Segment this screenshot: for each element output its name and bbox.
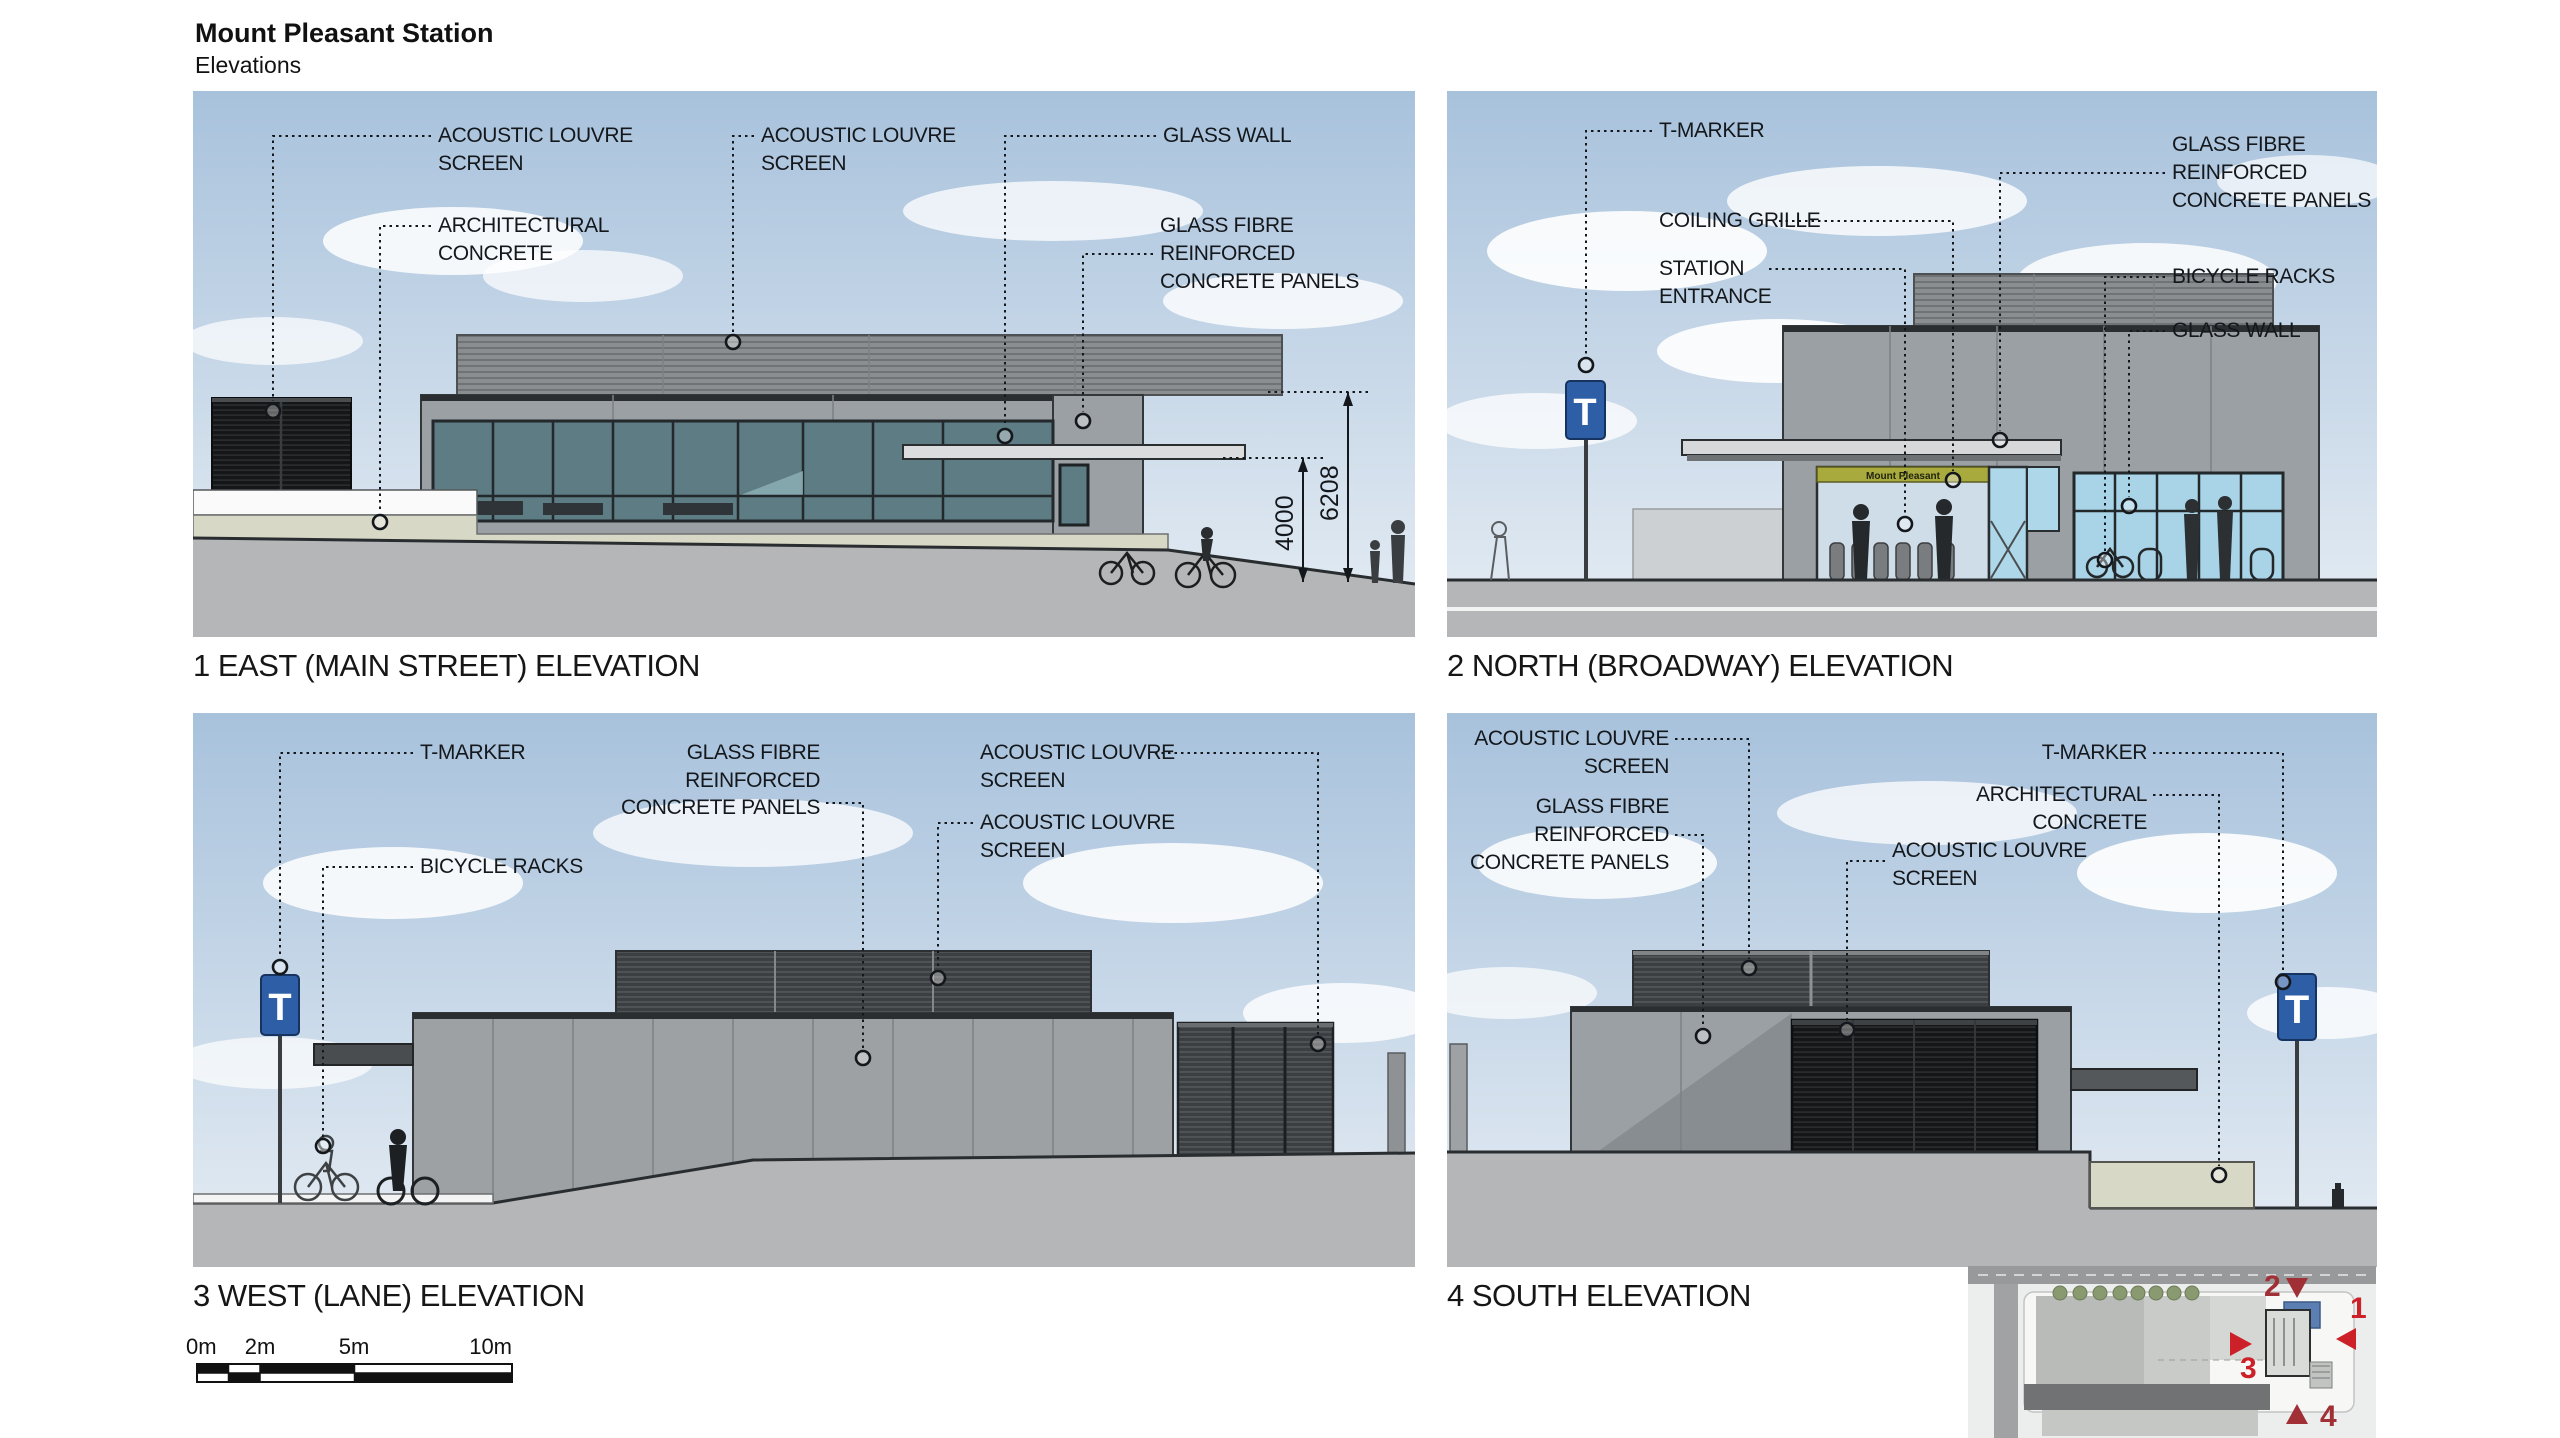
label-architectural-concrete-b: CONCRETE: [2032, 811, 2147, 834]
label-gfrc-b: REINFORCED: [2172, 161, 2307, 184]
label-acoustic-louvre-2b: SCREEN: [761, 152, 846, 175]
east-glass-wall: [433, 421, 1053, 521]
north-adjacent-building: [1633, 509, 1783, 580]
west-louvre-gate: [1178, 1023, 1333, 1156]
label-gfrc-b: REINFORCED: [1534, 823, 1669, 846]
label-acoustic-louvre-1: ACOUSTIC LOUVRE: [438, 124, 633, 147]
south-canopy-bar: [2071, 1069, 2197, 1090]
label-acoustic-louvre-1b: SCREEN: [980, 769, 1065, 792]
label-entrance: ENTRANCE: [1659, 285, 1772, 308]
east-canopy: [903, 445, 1245, 459]
label-tmarker: T-MARKER: [420, 741, 526, 764]
label-acoustic-louvre-2: ACOUSTIC LOUVRE: [1892, 839, 2087, 862]
label-bicycle-racks: BICYCLE RACKS: [420, 855, 583, 878]
north-ground: [1447, 580, 2377, 637]
south-architectural-concrete-block: [2090, 1162, 2254, 1208]
label-acoustic-louvre-1b: SCREEN: [1584, 755, 1669, 778]
east-acoustic-louvre-block: [212, 398, 351, 490]
scale-bar-labels: 0m 2m 5m 10m: [186, 1334, 512, 1359]
tmarker-letter-west: T: [268, 987, 291, 1029]
dim-6208-text: 6208: [1316, 465, 1344, 521]
label-acoustic-louvre-2: ACOUSTIC LOUVRE: [980, 811, 1175, 834]
label-architectural-concrete: ARCHITECTURAL: [1976, 783, 2147, 806]
scale-bar: 0m 2m 5m 10m: [180, 1326, 540, 1406]
tmarker-letter-north: T: [1573, 392, 1596, 434]
south-side-fin: [1450, 1044, 1467, 1152]
west-roof-louvre-screen: [616, 951, 1091, 1013]
label-acoustic-louvre-1: ACOUSTIC LOUVRE: [980, 741, 1175, 764]
sheet-title: Mount Pleasant Station: [195, 18, 494, 49]
station-name-sign-text: Mount Pleasant: [1866, 471, 1941, 482]
label-architectural-concrete: ARCHITECTURAL: [438, 214, 609, 237]
scale-bar-graphic: [197, 1364, 512, 1382]
site-plan-road-top: [1968, 1266, 2376, 1284]
label-bicycle-racks: BICYCLE RACKS: [2172, 265, 2335, 288]
label-coiling-grille: COILING GRILLE: [1659, 209, 1821, 232]
label-acoustic-louvre-2b: SCREEN: [1892, 867, 1977, 890]
east-roof-louvre-screen: [457, 335, 1282, 395]
label-gfrc-c: CONCRETE PANELS: [1470, 851, 1669, 874]
west-canopy-bar: [314, 1044, 413, 1065]
west-elevation-drawing: T T-MARKER BICYCLE RACKS GLASS FIBRE REI…: [193, 713, 1415, 1267]
north-elevation-caption: 2 NORTH (BROADWAY) ELEVATION: [1447, 648, 1953, 684]
label-acoustic-louvre-2: ACOUSTIC LOUVRE: [761, 124, 956, 147]
label-gfrc-c: CONCRETE PANELS: [1160, 270, 1359, 293]
plan-marker-1: 1: [2350, 1292, 2367, 1325]
label-gfrc-c: CONCRETE PANELS: [2172, 189, 2371, 212]
south-elevation-drawing: T ACOUSTIC LOUVRE SCREEN GLASS FIBRE REI…: [1447, 713, 2377, 1267]
label-acoustic-louvre-1b: SCREEN: [438, 152, 523, 175]
plan-marker-4: 4: [2320, 1400, 2337, 1433]
label-gfrc-b: REINFORCED: [1160, 242, 1295, 265]
label-acoustic-louvre-1: ACOUSTIC LOUVRE: [1474, 727, 1669, 750]
label-gfrc: GLASS FIBRE: [2172, 133, 2306, 156]
west-elevation-caption: 3 WEST (LANE) ELEVATION: [193, 1278, 585, 1314]
sheet-subtitle: Elevations: [195, 52, 301, 79]
label-station: STATION: [1659, 257, 1744, 280]
label-tmarker: T-MARKER: [2042, 741, 2148, 764]
label-gfrc: GLASS FIBRE: [1536, 795, 1670, 818]
west-side-fin: [1388, 1053, 1405, 1153]
label-gfrc-c: CONCRETE PANELS: [621, 796, 820, 819]
scale-0m: 0m: [186, 1334, 217, 1359]
label-gfrc: GLASS FIBRE: [687, 741, 821, 764]
dim-4000-text: 4000: [1271, 495, 1299, 551]
label-glass-wall: GLASS WALL: [1163, 124, 1291, 147]
east-elevation-caption: 1 EAST (MAIN STREET) ELEVATION: [193, 648, 700, 684]
site-plan-road-left: [1994, 1284, 2018, 1438]
label-architectural-concrete-b: CONCRETE: [438, 242, 553, 265]
plan-marker-3: 3: [2240, 1352, 2257, 1385]
east-pier-window: [1060, 465, 1088, 525]
scale-2m: 2m: [245, 1334, 276, 1359]
label-tmarker: T-MARKER: [1659, 119, 1765, 142]
plan-marker-2: 2: [2264, 1270, 2281, 1303]
north-elevation-drawing: Mount Pleasant: [1447, 91, 2377, 637]
label-gfrc-b: REINFORCED: [685, 769, 820, 792]
north-canopy-shadow: [1687, 455, 2061, 461]
scale-10m: 10m: [469, 1334, 512, 1359]
label-gfrc: GLASS FIBRE: [1160, 214, 1294, 237]
scale-5m: 5m: [339, 1334, 370, 1359]
label-glass-wall: GLASS WALL: [2172, 319, 2300, 342]
south-roof-louvre-screen: [1633, 951, 1989, 1007]
south-main-building: [1571, 1007, 2071, 1152]
site-plan-key: 2 1 3 4: [1968, 1266, 2376, 1438]
south-acoustic-louvre-panel: [1792, 1020, 2037, 1152]
tmarker-letter-south: T: [2285, 988, 2309, 1032]
east-elevation-drawing: 4000 6208 ACOUSTIC LOUVRE SCREEN ACOUSTI…: [193, 91, 1415, 637]
south-elevation-caption: 4 SOUTH ELEVATION: [1447, 1278, 1751, 1314]
label-acoustic-louvre-2b: SCREEN: [980, 839, 1065, 862]
